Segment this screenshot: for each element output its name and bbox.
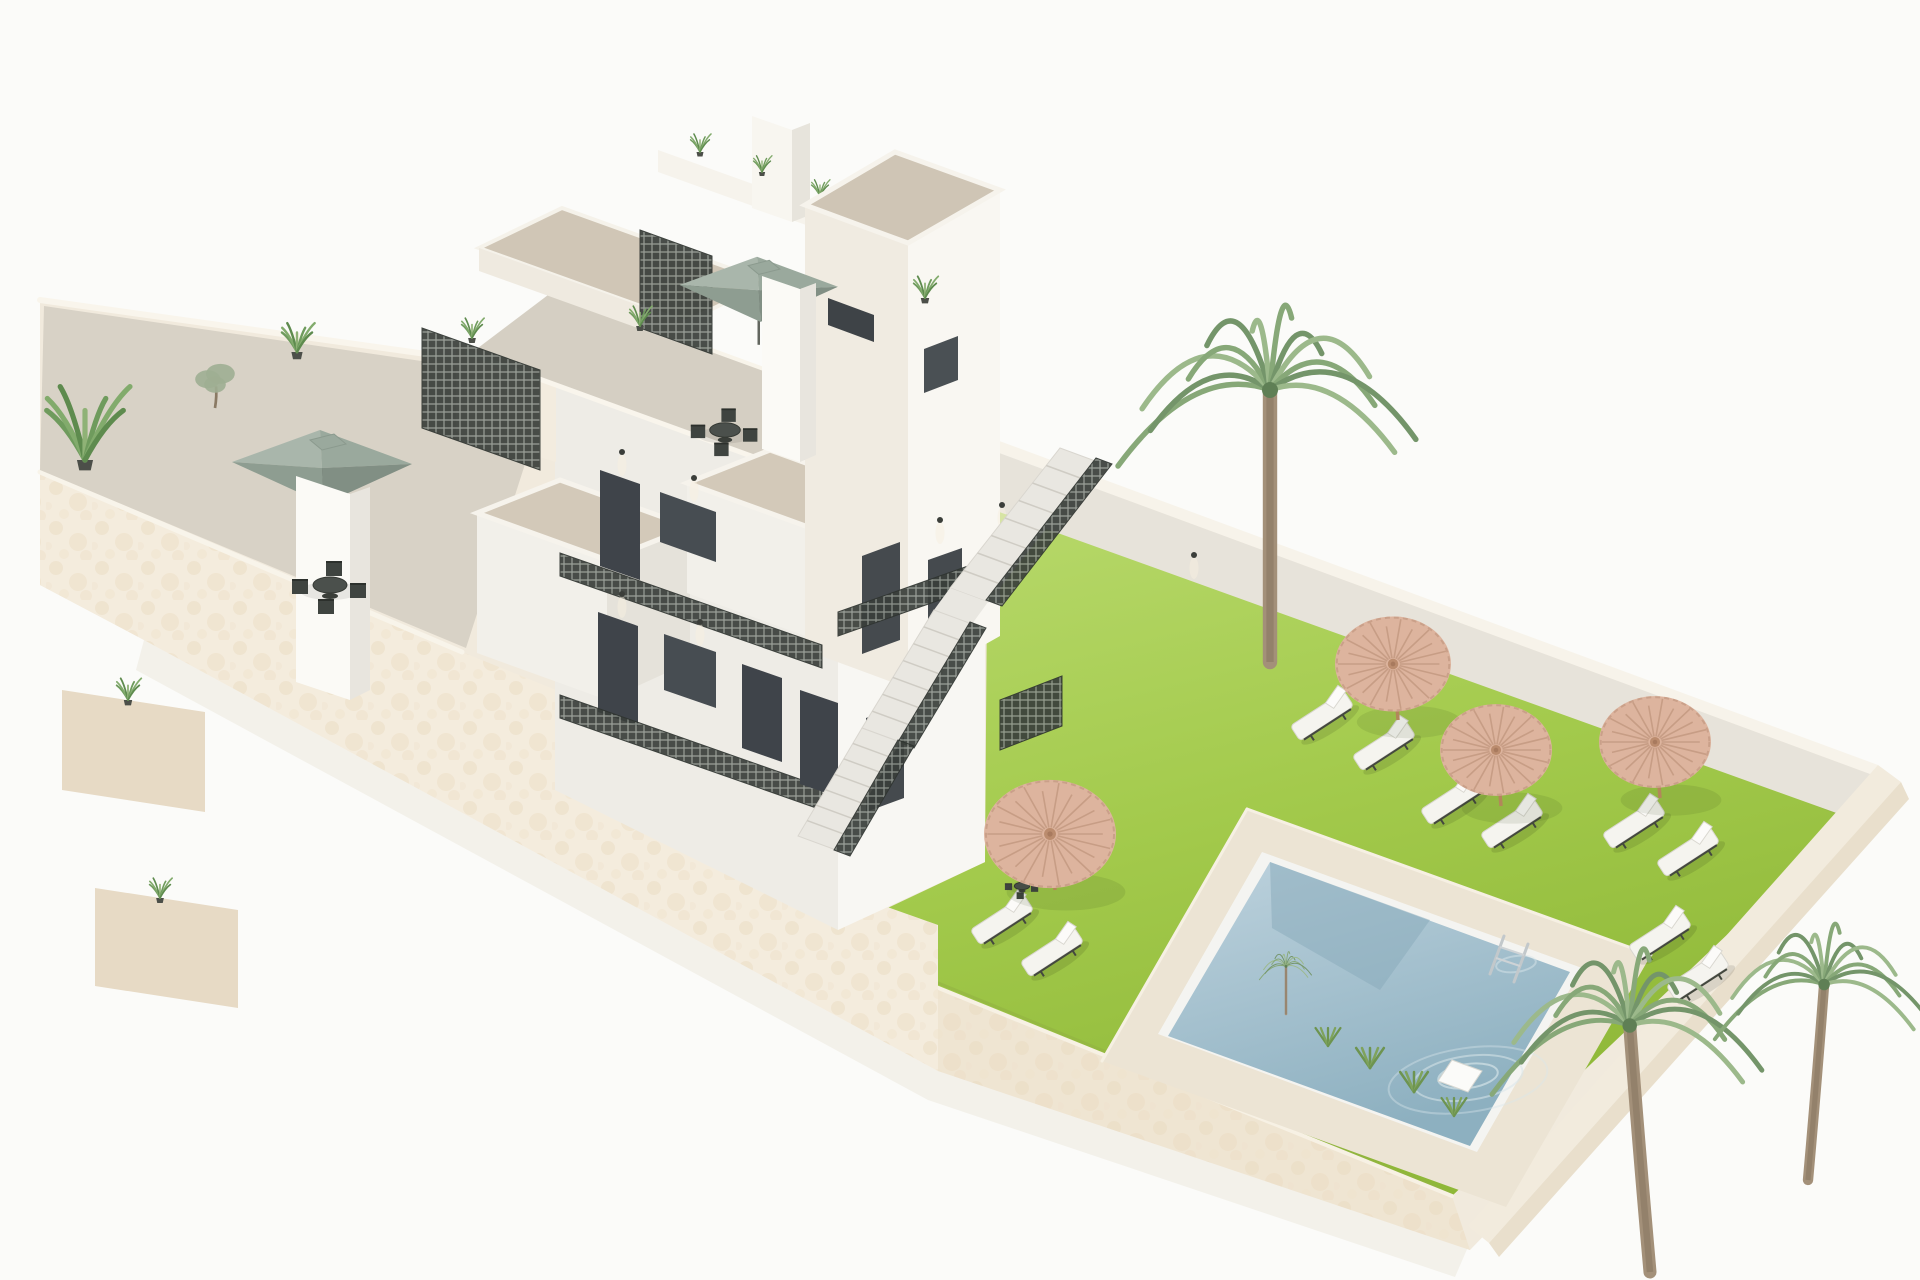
sw-door-2 — [598, 612, 638, 726]
sw-door-3 — [742, 664, 782, 762]
architectural-render-page: Aerial 3D rendering of a white Mediterra… — [0, 0, 1920, 1280]
sw-door-1 — [600, 470, 640, 580]
architectural-render — [0, 0, 1920, 1280]
back-chimney — [752, 116, 792, 222]
right-chimney — [762, 276, 800, 462]
right-chimney-side — [800, 283, 816, 462]
